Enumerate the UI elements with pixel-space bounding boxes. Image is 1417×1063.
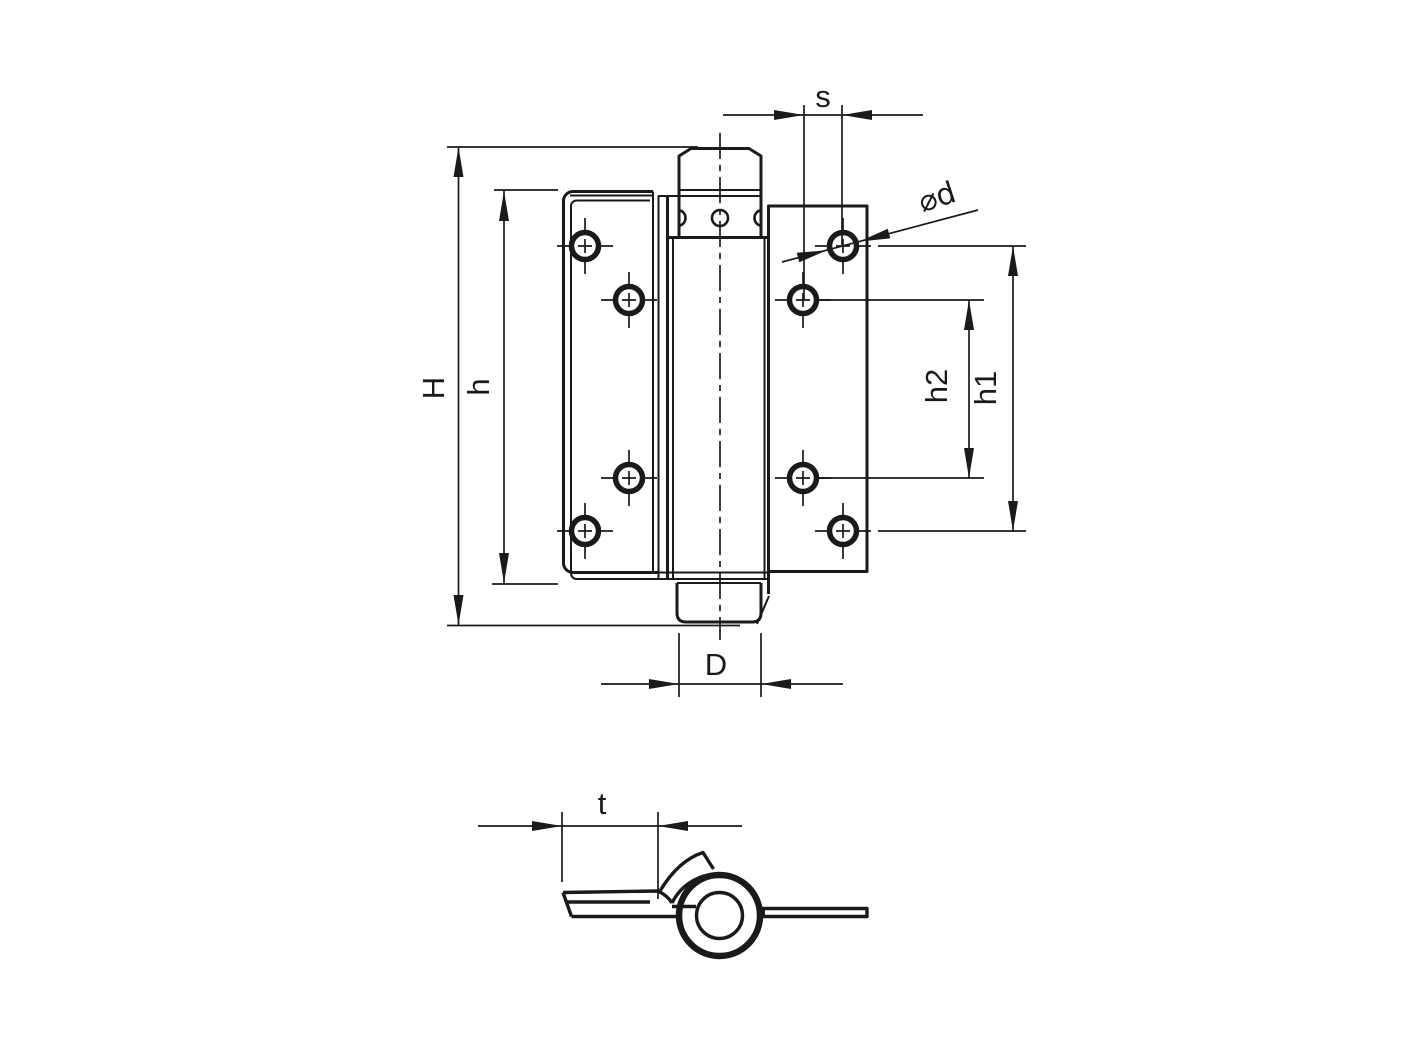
bottom-knuckle-cap [677, 583, 769, 624]
side-right-leaf [757, 909, 867, 917]
side-view: t [478, 786, 867, 956]
tension-collar [668, 210, 771, 238]
screw-hole [557, 218, 613, 274]
right-leaf-holes [775, 218, 871, 559]
screw-hole [601, 450, 657, 506]
front-view: s ⌀d H h [416, 79, 1026, 697]
dimension-label-D: D [705, 647, 727, 682]
dimension-label-h: h [461, 378, 496, 395]
dimension-h: h [461, 190, 558, 584]
dimension-label-t: t [598, 786, 607, 821]
drawing-page: s ⌀d H h [0, 0, 1417, 1063]
screw-hole [815, 503, 871, 559]
dimension-label-h1: h1 [968, 371, 1003, 405]
dimension-label-diameter: ⌀d [914, 175, 960, 220]
dimension-label-s: s [815, 79, 831, 114]
screw-hole [557, 503, 613, 559]
dimension-label-H: H [416, 377, 451, 399]
screw-hole [601, 272, 657, 328]
hinge-barrel [658, 133, 771, 640]
dimension-D: D [601, 633, 843, 697]
dimension-hole-diameter: ⌀d [782, 175, 978, 262]
dimension-label-h2: h2 [919, 369, 954, 403]
dimension-h2: h2 [815, 300, 984, 478]
technical-drawing-canvas: s ⌀d H h [0, 0, 1417, 1063]
side-knuckle [679, 875, 760, 956]
